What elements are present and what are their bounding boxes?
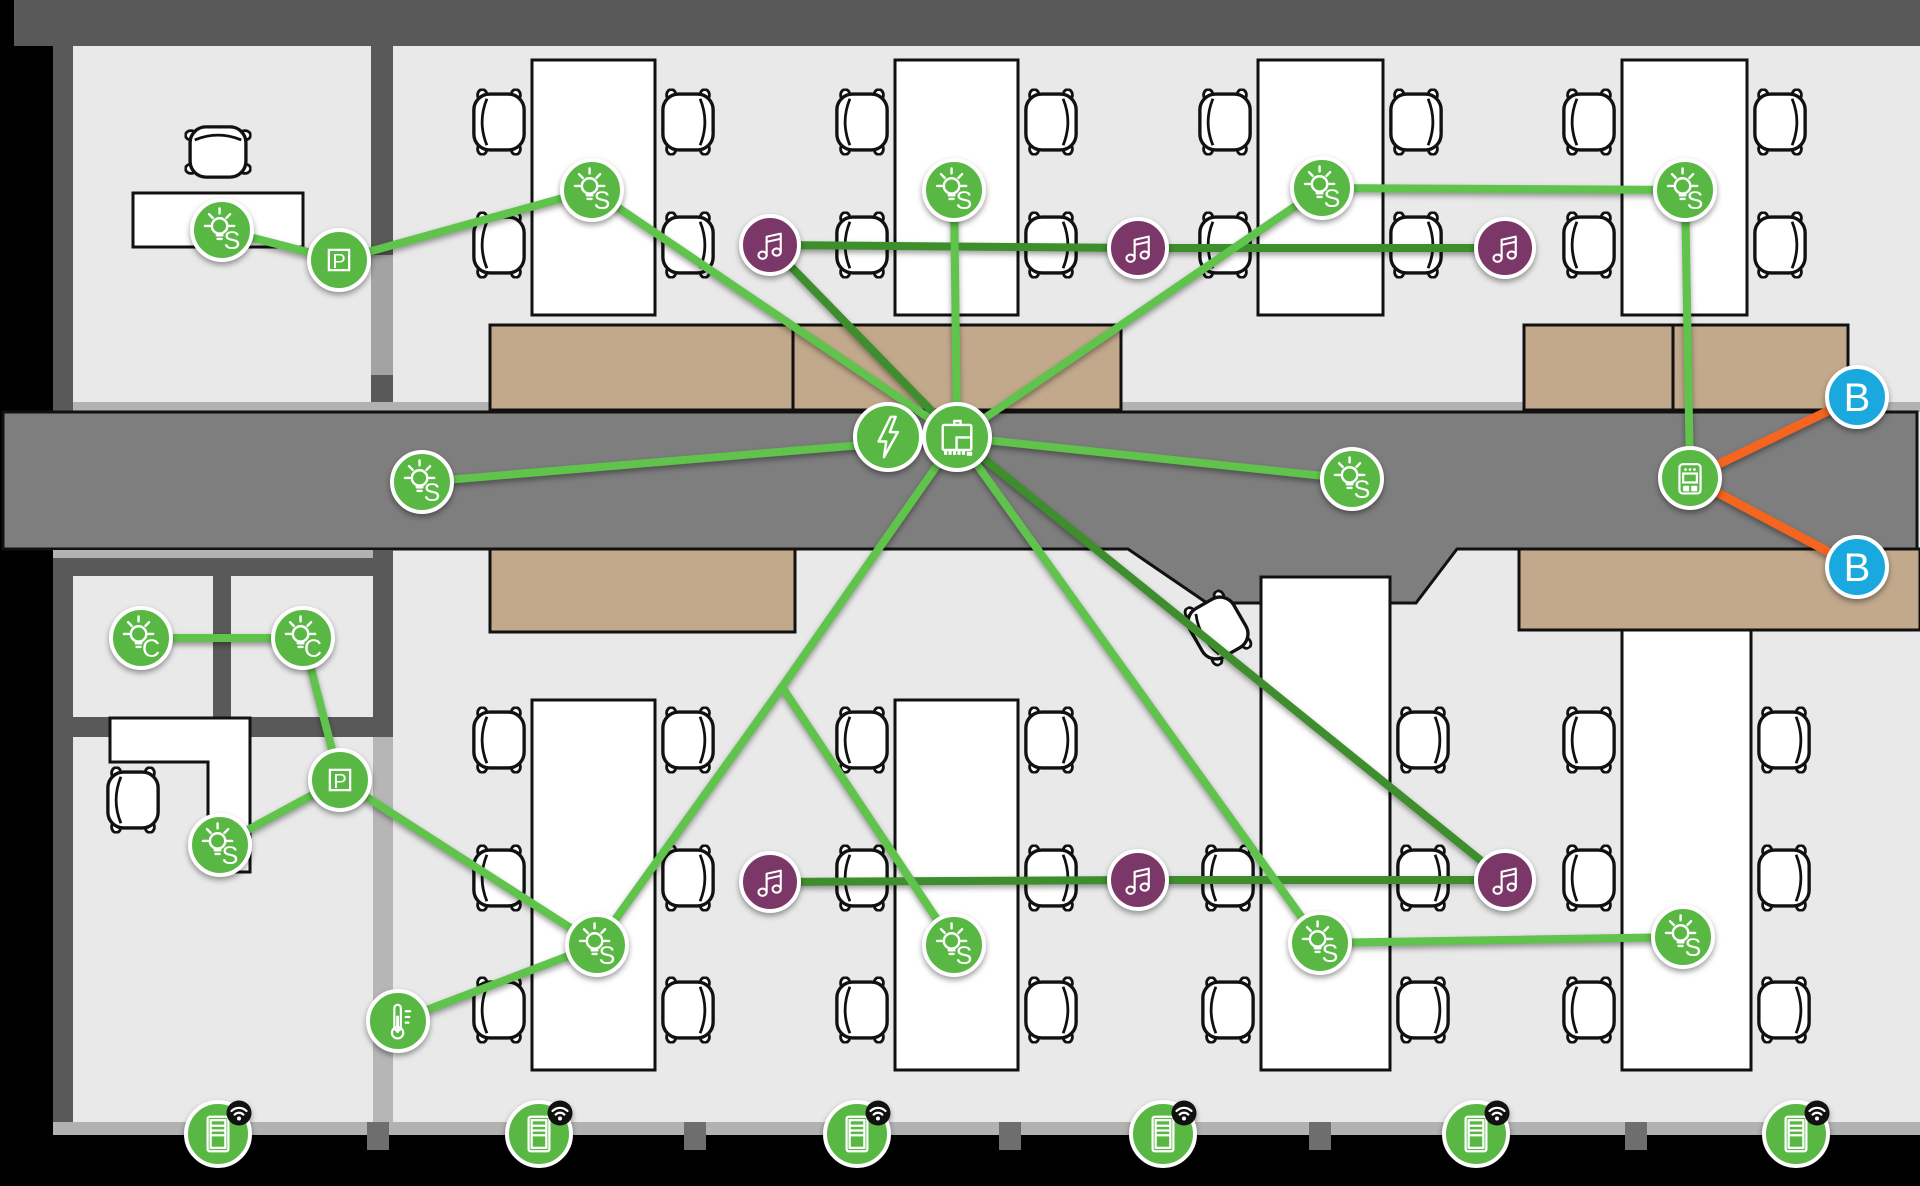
link-m4-m5 [770,880,1138,882]
node-letter: S [1685,934,1702,962]
wifi-badge [866,1101,891,1126]
wifi-badge [1485,1101,1510,1126]
link-s4-s5 [1322,188,1685,190]
node-music[interactable] [1476,219,1534,277]
chair [474,707,524,772]
node-p-square-p[interactable]: P [310,750,370,810]
node-tablet[interactable] [186,1101,252,1167]
chair [1026,977,1076,1042]
chair [1203,977,1253,1042]
music-circle[interactable] [1109,219,1167,277]
chair [1755,212,1805,277]
lightning-circle[interactable] [855,404,921,470]
chair [663,707,713,772]
bulb-circle[interactable] [192,200,252,260]
node-letter-b[interactable]: B [1827,537,1887,597]
node-bulb-s[interactable]: S [192,200,252,260]
node-letter: S [222,842,239,870]
chair [1759,845,1809,910]
node-letter: S [1354,476,1371,504]
bulb-circle[interactable] [924,915,984,975]
chair [837,707,887,772]
node-music[interactable] [1109,851,1167,909]
bulb-circle[interactable] [1653,907,1713,967]
bulb-circle[interactable] [567,915,627,975]
chair [474,89,524,154]
node-bulb-s[interactable]: S [562,160,622,220]
bulb-circle[interactable] [924,160,984,220]
chair [1564,89,1614,154]
wifi-badge [1805,1101,1830,1126]
node-music[interactable] [741,853,799,911]
wifi-badge [227,1101,252,1126]
link-s5-gw [1685,190,1690,478]
smart-office-floorplan: SPSSSSSSBBCCPSSSSS [0,0,1920,1186]
node-controller[interactable] [924,404,990,470]
chair [1564,707,1614,772]
node-switch[interactable] [1660,448,1720,508]
node-tablet[interactable] [1764,1101,1830,1167]
chair [1398,977,1448,1042]
music-circle[interactable] [741,216,799,274]
node-letter: S [956,187,973,215]
node-letter: S [224,227,241,255]
node-letter: S [1687,187,1704,215]
chair [837,977,887,1042]
node-tablet[interactable] [825,1101,891,1167]
music-circle[interactable] [1476,219,1534,277]
node-bulb-s[interactable]: S [1653,907,1713,967]
bulb-circle[interactable] [1292,158,1352,218]
node-letter: S [424,479,441,507]
meeting-room-door [371,255,393,375]
node-letter: B [1844,376,1871,420]
node-letter: S [1322,940,1339,968]
music-circle[interactable] [741,853,799,911]
chair [1391,89,1441,154]
node-letter-b[interactable]: B [1827,367,1887,427]
chair [108,767,158,832]
node-bulb-s[interactable]: S [567,915,627,975]
node-bulb-s[interactable]: S [924,915,984,975]
chair [1564,212,1614,277]
node-letter: S [594,187,611,215]
chair [185,127,250,177]
chair [1759,707,1809,772]
chair [1759,977,1809,1042]
node-letter: C [142,635,160,663]
chair [837,89,887,154]
node-p-square-p[interactable]: P [309,230,369,290]
music-circle[interactable] [1476,851,1534,909]
left-wall [53,46,73,1122]
bulb-circle[interactable] [1655,160,1715,220]
node-bulb-s[interactable]: S [924,160,984,220]
desk [1622,630,1751,1070]
chair [663,977,713,1042]
chair [1026,707,1076,772]
wifi-badge [548,1101,573,1126]
meeting-room-wall-upper [371,46,393,255]
node-bulb-s[interactable]: S [1290,913,1350,973]
node-letter: P [333,771,346,793]
node-bulb-s[interactable]: S [392,452,452,512]
node-bulb-c[interactable]: C [111,608,171,668]
node-tablet[interactable] [507,1101,573,1167]
bulb-circle[interactable] [1290,913,1350,973]
chair [1026,89,1076,154]
chair [1398,707,1448,772]
node-letter: S [599,942,616,970]
node-bulb-s[interactable]: S [1292,158,1352,218]
node-thermometer[interactable] [368,991,428,1051]
bulb-circle[interactable] [1322,449,1382,509]
glass-partition [373,737,393,1122]
node-music[interactable] [741,216,799,274]
node-music[interactable] [1109,219,1167,277]
bulb-circle[interactable] [392,452,452,512]
node-bulb-s[interactable]: S [190,815,250,875]
switch-circle[interactable] [1660,448,1720,508]
node-bulb-c[interactable]: C [273,608,333,668]
node-letter: S [956,942,973,970]
chair [1564,845,1614,910]
chair [663,845,713,910]
chair [1564,977,1614,1042]
node-letter: P [332,251,345,273]
node-bulb-s[interactable]: S [1322,449,1382,509]
node-tablet[interactable] [1131,1101,1197,1167]
node-music[interactable] [1476,851,1534,909]
wifi-badge [1172,1101,1197,1126]
node-letter: B [1844,546,1871,590]
node-tablet[interactable] [1444,1101,1510,1167]
bulb-circle[interactable] [190,815,250,875]
node-bulb-s[interactable]: S [1655,160,1715,220]
top-wall-band [14,0,1920,46]
node-letter: S [1324,185,1341,213]
chair [1200,89,1250,154]
node-lightning[interactable] [855,404,921,470]
node-letter: C [304,635,322,663]
music-circle[interactable] [1109,851,1167,909]
chair [663,89,713,154]
desk [1261,577,1390,1070]
chair [1755,89,1805,154]
bulb-circle[interactable] [562,160,622,220]
link-s3-hub [954,190,957,437]
